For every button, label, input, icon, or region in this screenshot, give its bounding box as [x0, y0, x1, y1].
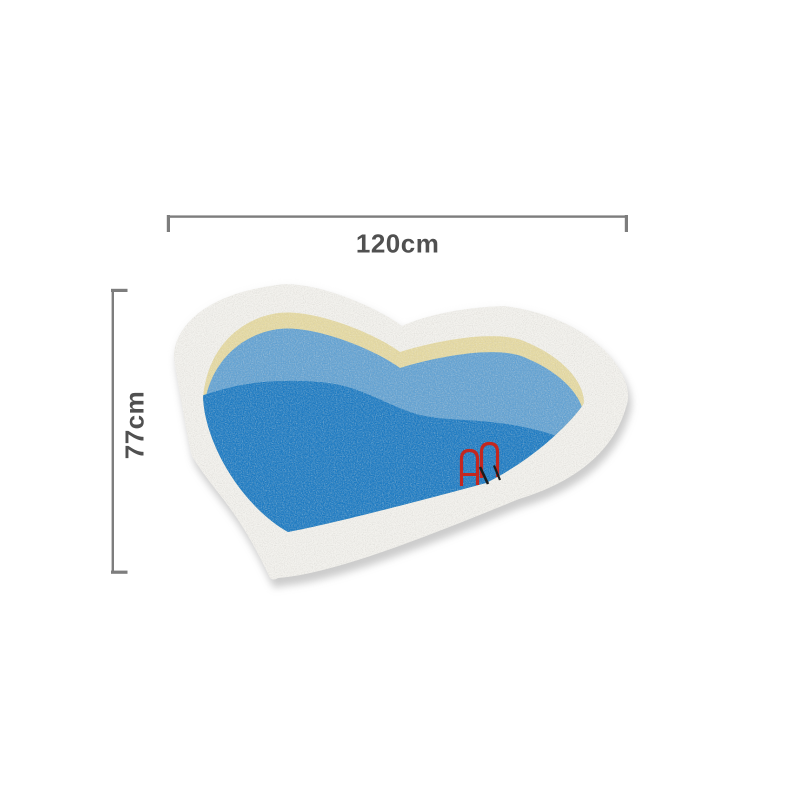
svg-text:120cm: 120cm — [356, 228, 439, 258]
svg-text:77cm: 77cm — [120, 391, 150, 460]
